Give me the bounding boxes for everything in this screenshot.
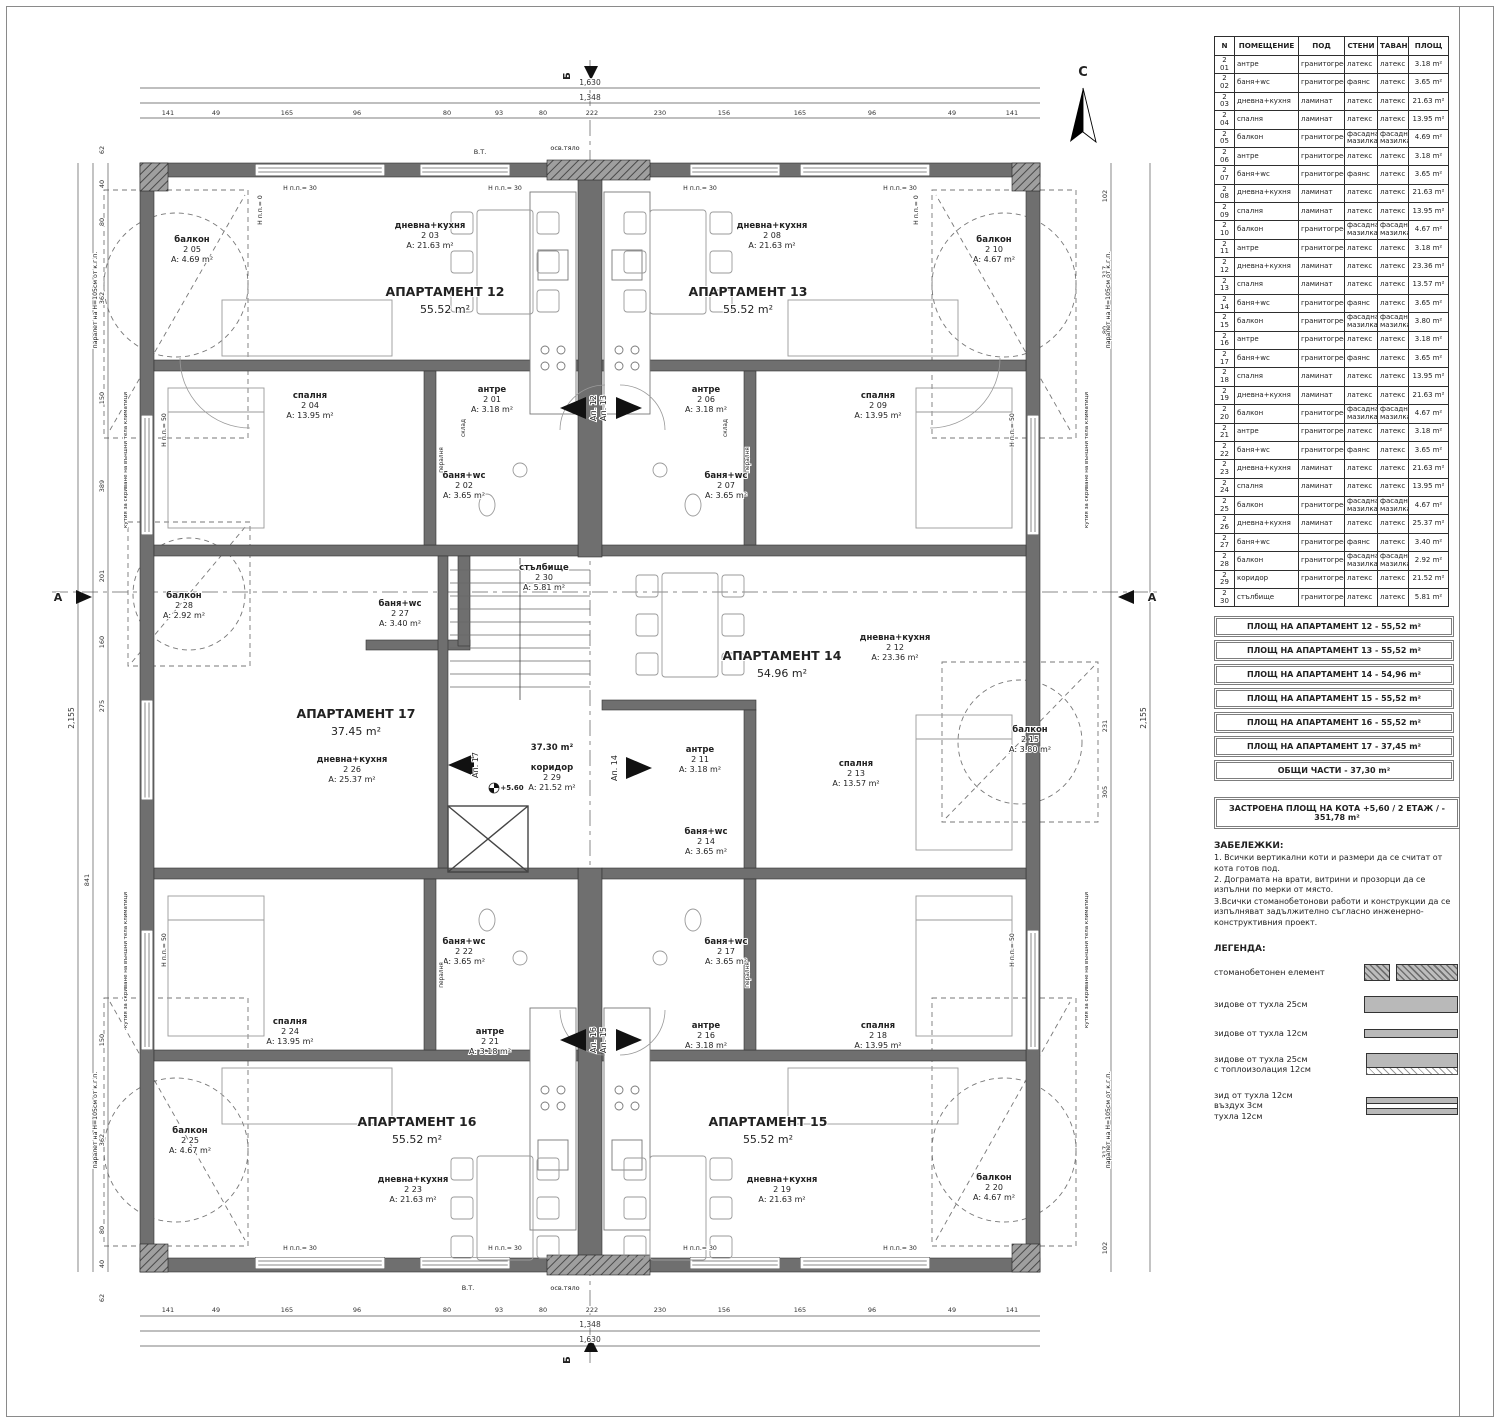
schedule-row: 2 04спалняламинатлатекслатекс13.95 m² [1215,111,1449,129]
schedule-col-header: N [1215,37,1235,56]
plan-label: 141 [1006,109,1018,117]
schedule-row: 2 28балконгранитогресфасадна мазилкафаса… [1215,552,1449,570]
schedule-cell: 5.81 m² [1409,588,1449,606]
schedule-cell: антре [1235,331,1299,349]
schedule-cell: латекс [1345,570,1378,588]
schedule-cell: 2 13 [1215,276,1235,294]
plan-label: склад [723,419,729,437]
schedule-cell: ламинат [1299,478,1345,496]
schedule-cell: 4.67 m² [1409,405,1449,423]
plan-label: 1,630 [579,78,601,87]
room-label: спалня2 04А: 13.95 m² [286,391,333,420]
schedule-cell: фаянс [1345,533,1378,551]
schedule-cell: латекс [1378,441,1409,459]
plan-label: 62 [98,1294,106,1302]
info-panel: NПОМЕЩЕНИЕПОДСТЕНИТАВАНПЛОЩ 2 01антрегра… [1214,36,1460,1136]
schedule-cell: латекс [1378,386,1409,404]
schedule-cell: фаянс [1345,74,1378,92]
schedule-cell: латекс [1378,350,1409,368]
schedule-cell: латекс [1378,239,1409,257]
schedule-cell: дневна+кухня [1235,460,1299,478]
schedule-cell: гранитогрес [1299,570,1345,588]
schedule-cell: 2 04 [1215,111,1235,129]
schedule-cell: гранитогрес [1299,497,1345,515]
plan-label: 841 [83,874,91,886]
schedule-cell: ламинат [1299,276,1345,294]
schedule-row: 2 27баня+wcгранитогресфаянслатекс3.40 m² [1215,533,1449,551]
schedule-cell: 2.92 m² [1409,552,1449,570]
drawing-sheet: { "colors":{"wall":"#6f6f6f","line":"#33… [0,0,1500,1423]
schedule-cell: 2 25 [1215,497,1235,515]
plan-label: 362 [98,1134,106,1146]
plan-label: кутия за скриване на външни тела климати… [1084,392,1090,528]
schedule-cell: фасадна мазилка [1378,221,1409,239]
staircase [450,558,590,700]
entrance-label: Ап. 13 [599,395,608,421]
schedule-cell: латекс [1378,74,1409,92]
schedule-cell: 3.65 m² [1409,74,1449,92]
plan-label: 40 [98,1260,106,1268]
schedule-col-header: СТЕНИ [1345,37,1378,56]
schedule-cell: 13.57 m² [1409,276,1449,294]
room-label: дневна+кухня2 23А: 21.63 m² [378,1175,449,1204]
schedule-row: 2 26дневна+кухняламинатлатекслатекс25.37… [1215,515,1449,533]
room-label: антре2 16А: 3.18 m² [685,1021,727,1050]
plan-label: 222 [586,1306,598,1314]
schedule-cell: 23.36 m² [1409,258,1449,276]
schedule-cell: баня+wc [1235,441,1299,459]
entrance-label: Ап. 14 [610,755,619,781]
schedule-cell: 2 08 [1215,184,1235,202]
area-summary-box: ПЛОЩ НА АПАРТАМЕНТ 12 - 55,52 m² [1214,616,1454,637]
room-label: балкон2 05А: 4.69 m² [171,234,213,264]
note-item: 2. Дограмата на врати, витрини и прозорц… [1214,875,1458,896]
plan-label: 2,155 [1139,707,1148,729]
dining-furniture [662,573,718,677]
schedule-cell: латекс [1345,92,1378,110]
schedule-cell: гранитогрес [1299,588,1345,606]
schedule-cell: фасадна мазилка [1345,552,1378,570]
schedule-cell: баня+wc [1235,350,1299,368]
schedule-cell: гранитогрес [1299,405,1345,423]
plan-label: осв.тяло [550,1284,579,1292]
schedule-cell: балкон [1235,405,1299,423]
schedule-cell: латекс [1378,588,1409,606]
plan-label: 141 [162,1306,174,1314]
schedule-cell: фасадна мазилка [1345,313,1378,331]
schedule-row: 2 16антрегранитогреслатекслатекс3.18 m² [1215,331,1449,349]
schedule-row: 2 13спалняламинатлатекслатекс13.57 m² [1215,276,1449,294]
schedule-cell: 2 15 [1215,313,1235,331]
schedule-cell: спалня [1235,276,1299,294]
schedule-cell: латекс [1345,331,1378,349]
schedule-cell: 21.63 m² [1409,386,1449,404]
room-label: антре2 06А: 3.18 m² [685,385,727,414]
schedule-cell: спалня [1235,203,1299,221]
schedule-cell: 2 10 [1215,221,1235,239]
built-area-box: ЗАСТРОЕНА ПЛОЩ НА КОТА +5,60 / 2 ЕТАЖ / … [1214,797,1460,829]
plan-label: Н п.п.= 50 [161,413,168,447]
floor-plan: антре2 01А: 3.18 m²баня+wc2 02А: 3.65 m²… [0,0,1210,1423]
apartment-area-summary: ПЛОЩ НА АПАРТАМЕНТ 12 - 55,52 m²ПЛОЩ НА … [1214,616,1454,781]
plan-label: Н п.п.= 30 [488,185,522,192]
schedule-cell: латекс [1345,203,1378,221]
plan-label: Б [562,72,573,80]
schedule-cell: латекс [1345,56,1378,74]
schedule-cell: 13.95 m² [1409,478,1449,496]
legend-swatch-brick25 [1362,996,1458,1013]
schedule-cell: антре [1235,56,1299,74]
schedule-cell: 21.63 m² [1409,92,1449,110]
schedule-cell: гранитогрес [1299,74,1345,92]
dining-furniture [451,251,473,273]
room-label: баня+wc2 17А: 3.65 m² [704,936,747,966]
plan-label: осв.тяло [550,144,579,152]
plan-label: 49 [948,109,956,117]
schedule-row: 2 12дневна+кухняламинатлатекслатекс23.36… [1215,258,1449,276]
schedule-cell: 13.95 m² [1409,368,1449,386]
schedule-cell: 3.18 m² [1409,239,1449,257]
schedule-cell: латекс [1378,203,1409,221]
schedule-cell: антре [1235,239,1299,257]
schedule-cell: фасадна мазилка [1378,405,1409,423]
room-label: дневна+кухня2 26А: 25.37 m² [317,755,388,784]
dining-furniture [451,1236,473,1258]
schedule-row: 2 11антрегранитогреслатекслатекс3.18 m² [1215,239,1449,257]
schedule-cell: антре [1235,423,1299,441]
room-label: дневна+кухня2 12А: 23.36 m² [860,633,931,662]
schedule-cell: латекс [1345,386,1378,404]
schedule-cell: 21.63 m² [1409,460,1449,478]
plan-label: Н п.п.= 50 [161,933,168,967]
plan-label: 389 [98,480,106,492]
area-summary-box: ПЛОЩ НА АПАРТАМЕНТ 14 - 54,96 m² [1214,664,1454,685]
schedule-cell: латекс [1378,111,1409,129]
dining-furniture [710,251,732,273]
schedule-cell: балкон [1235,129,1299,147]
room-label: антре2 11А: 3.18 m² [679,745,721,774]
plan-label: Н п.п.= 30 [683,185,717,192]
room-label: баня+wc2 22А: 3.65 m² [442,936,485,966]
schedule-cell: фаянс [1345,441,1378,459]
plan-label: 156 [718,109,730,117]
schedule-cell: 2 28 [1215,552,1235,570]
schedule-cell: латекс [1378,147,1409,165]
schedule-row: 2 09спалняламинатлатекслатекс13.95 m² [1215,203,1449,221]
plan-label: 231 [1101,720,1109,732]
schedule-col-header: ПЛОЩ [1409,37,1449,56]
room-label: спалня2 09А: 13.95 m² [854,391,901,420]
dining-furniture [451,1158,473,1180]
legend-title: ЛЕГЕНДА: [1214,944,1458,954]
schedule-cell: 2 18 [1215,368,1235,386]
schedule-cell: балкон [1235,497,1299,515]
plan-label: 96 [353,109,361,117]
schedule-cell: спалня [1235,368,1299,386]
schedule-cell: дневна+кухня [1235,92,1299,110]
schedule-cell: латекс [1378,533,1409,551]
area-summary-box: ПЛОЩ НА АПАРТАМЕНТ 13 - 55,52 m² [1214,640,1454,661]
schedule-cell: фасадна мазилка [1378,497,1409,515]
plan-label: 165 [281,109,293,117]
level-mark [489,783,499,793]
elevator [448,806,528,872]
schedule-cell: гранитогрес [1299,313,1345,331]
schedule-cell: баня+wc [1235,74,1299,92]
schedule-cell: баня+wc [1235,294,1299,312]
schedule-cell: латекс [1378,184,1409,202]
schedule-cell: 3.80 m² [1409,313,1449,331]
plan-label: паралет на Н=105см от к.г.п. [92,252,99,349]
plan-label: паралет на Н=105см от к.г.п. [1105,252,1112,349]
schedule-cell: латекс [1345,147,1378,165]
dining-furniture [710,1158,732,1180]
plan-label: пералня [439,962,445,988]
room-label: балкон2 20А: 4.67 m² [973,1172,1015,1202]
schedule-cell: стълбище [1235,588,1299,606]
schedule-row: 2 10балконгранитогресфасадна мазилкафаса… [1215,221,1449,239]
schedule-cell: 2 27 [1215,533,1235,551]
schedule-row: 2 18спалняламинатлатекслатекс13.95 m² [1215,368,1449,386]
schedule-cell: дневна+кухня [1235,258,1299,276]
room-label: балкон2 10А: 4.67 m² [973,234,1015,264]
schedule-cell: фаянс [1345,294,1378,312]
dining-furniture [636,653,658,675]
schedule-cell: 3.18 m² [1409,147,1449,165]
schedule-cell: ламинат [1299,460,1345,478]
schedule-cell: 2 29 [1215,570,1235,588]
dining-furniture [710,212,732,234]
schedule-cell: 3.40 m² [1409,533,1449,551]
schedule-cell: 3.65 m² [1409,350,1449,368]
schedule-cell: 21.63 m² [1409,184,1449,202]
schedule-cell: латекс [1345,460,1378,478]
schedule-row: 2 25балконгранитогресфасадна мазилкафаса… [1215,497,1449,515]
schedule-header-row: NПОМЕЩЕНИЕПОДСТЕНИТАВАНПЛОЩ [1215,37,1449,56]
schedule-row: 2 15балконгранитогресфасадна мазилкафаса… [1215,313,1449,331]
plan-label: 222 [586,109,598,117]
schedule-cell: 2 03 [1215,92,1235,110]
plan-label: 93 [495,1306,503,1314]
schedule-cell: 2 20 [1215,405,1235,423]
legend-label: зидове от тухла 25см [1214,999,1362,1009]
schedule-cell: 2 23 [1215,460,1235,478]
schedule-cell: латекс [1378,56,1409,74]
schedule-row: 2 05балконгранитогресфасадна мазилкафаса… [1215,129,1449,147]
area-summary-box: ПЛОЩ НА АПАРТАМЕНТ 17 - 37,45 m² [1214,736,1454,757]
schedule-cell: 25.37 m² [1409,515,1449,533]
plan-label: Н п.п.= 30 [883,1245,917,1252]
dining-furniture [722,614,744,636]
schedule-cell: баня+wc [1235,533,1299,551]
schedule-cell: латекс [1345,276,1378,294]
schedule-row: 2 06антрегранитогреслатекслатекс3.18 m² [1215,147,1449,165]
schedule-cell: 2 07 [1215,166,1235,184]
schedule-cell: латекс [1378,276,1409,294]
schedule-cell: латекс [1378,294,1409,312]
room-label: балкон2 25А: 4.67 m² [169,1125,211,1155]
schedule-cell: гранитогрес [1299,221,1345,239]
schedule-cell: гранитогрес [1299,147,1345,165]
dining-furniture [636,575,658,597]
schedule-cell: гранитогрес [1299,441,1345,459]
plan-label: пералня [745,962,751,988]
schedule-row: 2 20балконгранитогресфасадна мазилкафаса… [1215,405,1449,423]
schedule-cell: латекс [1345,478,1378,496]
schedule-cell: гранитогрес [1299,552,1345,570]
entrance-label: Ап. 16 [589,1027,598,1053]
legend-swatch-brick12 [1362,1029,1458,1038]
plan-label: 49 [212,109,220,117]
schedule-cell: латекс [1345,515,1378,533]
room-label: дневна+кухня2 19А: 21.63 m² [747,1175,818,1204]
schedule-cell: латекс [1378,331,1409,349]
plan-label: 165 [794,1306,806,1314]
plan-label: 160 [98,636,106,648]
schedule-cell: 2 21 [1215,423,1235,441]
schedule-cell: гранитогрес [1299,533,1345,551]
plan-label: 165 [281,1306,293,1314]
schedule-cell: латекс [1345,258,1378,276]
schedule-cell: дневна+кухня [1235,184,1299,202]
plan-label: 305 [1101,786,1109,798]
schedule-cell: 3.65 m² [1409,441,1449,459]
plan-label: 96 [868,109,876,117]
plan-label: 37.30 m² [531,743,574,753]
dining-furniture [537,1236,559,1258]
plan-label: 93 [495,109,503,117]
schedule-cell: 2 12 [1215,258,1235,276]
schedule-cell: гранитогрес [1299,294,1345,312]
schedule-cell: балкон [1235,552,1299,570]
schedule-cell: 4.67 m² [1409,497,1449,515]
schedule-cell: латекс [1378,570,1409,588]
schedule-cell: 2 09 [1215,203,1235,221]
plan-label: 80 [443,109,451,117]
schedule-cell: гранитогрес [1299,331,1345,349]
entrance-label: Ап. 17 [471,752,480,778]
schedule-cell: 4.67 m² [1409,221,1449,239]
schedule-cell: гранитогрес [1299,423,1345,441]
schedule-cell: 2 30 [1215,588,1235,606]
schedule-cell: 13.95 m² [1409,203,1449,221]
schedule-cell: балкон [1235,313,1299,331]
plan-label: 49 [212,1306,220,1314]
plan-label: пералня [745,447,751,473]
legend-item: зид от тухла 12см въздух 3см тухла 12см [1214,1090,1458,1121]
schedule-cell: 13.95 m² [1409,111,1449,129]
legend-swatch-brick25iso [1362,1053,1458,1075]
schedule-cell: латекс [1378,92,1409,110]
schedule-cell: 3.65 m² [1409,294,1449,312]
entrance-label: Ап. 15 [599,1027,608,1053]
plan-label: Н п.п.= 30 [883,185,917,192]
schedule-cell: ламинат [1299,368,1345,386]
entrance-arrow-icon [626,757,652,779]
schedule-cell: балкон [1235,221,1299,239]
schedule-cell: гранитогрес [1299,129,1345,147]
legend-label: зид от тухла 12см въздух 3см тухла 12см [1214,1090,1362,1121]
legend-item: зидове от тухла 25см [1214,996,1458,1013]
schedule-cell: 3.18 m² [1409,423,1449,441]
plan-label: 275 [98,700,106,712]
plan-label: С [1078,65,1088,80]
schedule-cell: фасадна мазилка [1345,497,1378,515]
room-label: стълбище2 30А: 5.81 m² [519,562,569,592]
plan-label: Н п.п.= 50 [1009,933,1016,967]
schedule-cell: латекс [1378,478,1409,496]
notes-title: ЗАБЕЛЕЖКИ: [1214,841,1458,851]
plan-label: 80 [98,218,106,226]
plan-label: 165 [794,109,806,117]
schedule-cell: 4.69 m² [1409,129,1449,147]
plan-label: 62 [98,146,106,154]
plan-label: А [1148,591,1157,604]
schedule-cell: фасадна мазилка [1345,221,1378,239]
legend-label: зидове от тухла 25см с топлоизолация 12с… [1214,1054,1362,1075]
schedule-row: 2 21антрегранитогреслатекслатекс3.18 m² [1215,423,1449,441]
plan-label: Б [562,1356,573,1364]
room-label: спалня2 24А: 13.95 m² [266,1017,313,1046]
schedule-cell: 2 24 [1215,478,1235,496]
plan-label: Н п.п.= 30 [488,1245,522,1252]
room-label: дневна+кухня2 03А: 21.63 m² [395,221,466,250]
dining-furniture [636,614,658,636]
room-label: антре2 21А: 3.18 m² [469,1027,511,1056]
schedule-cell: дневна+кухня [1235,515,1299,533]
plan-label: 1,630 [579,1335,601,1344]
schedule-cell: 2 01 [1215,56,1235,74]
schedule-cell: 2 16 [1215,331,1235,349]
plan-label: Н п.п.= 0 [257,195,264,225]
plan-label: 40 [98,180,106,188]
schedule-cell: гранитогрес [1299,166,1345,184]
room-label: баня+wc2 14А: 3.65 m² [684,826,727,856]
dining-furniture [710,1197,732,1219]
plan-label: кутия за скриване на външни тела климати… [123,392,129,528]
schedule-cell: латекс [1345,239,1378,257]
schedule-cell: 2 11 [1215,239,1235,257]
schedule-row: 2 17баня+wcгранитогресфаянслатекс3.65 m² [1215,350,1449,368]
apartment-label: АПАРТАМЕНТ 1655.52 m² [358,1114,477,1146]
room-label: коридор2 29А: 21.52 m² [528,763,575,792]
schedule-cell: спалня [1235,478,1299,496]
schedule-cell: фасадна мазилка [1378,313,1409,331]
schedule-cell: баня+wc [1235,166,1299,184]
plan-label: 49 [948,1306,956,1314]
schedule-cell: ламинат [1299,258,1345,276]
schedule-cell: 21.52 m² [1409,570,1449,588]
room-label: баня+wc2 02А: 3.65 m² [442,470,485,500]
legend-label: стоманобетонен елемент [1214,967,1362,977]
note-item: 3.Всички стоманобетонови работи и констр… [1214,897,1458,928]
schedule-cell: 2 19 [1215,386,1235,404]
plan-label: 1,348 [579,93,601,102]
walls [140,163,1040,1272]
schedule-row: 2 29коридоргранитогреслатекслатекс21.52 … [1215,570,1449,588]
plan-label: 80 [443,1306,451,1314]
plan-label: 96 [353,1306,361,1314]
notes-section: ЗАБЕЛЕЖКИ: 1. Всички вертикални коти и р… [1214,841,1458,928]
schedule-row: 2 02баня+wcгранитогресфаянслатекс3.65 m² [1215,74,1449,92]
legend-label: зидове от тухла 12см [1214,1028,1362,1038]
plan-label: 1,348 [579,1320,601,1329]
plan-label: Н п.п.= 30 [283,1245,317,1252]
note-item: 1. Всички вертикални коти и размери да с… [1214,853,1458,874]
schedule-cell: 2 26 [1215,515,1235,533]
plan-label: +5.60 [500,784,523,792]
schedule-row: 2 14баня+wcгранитогресфаянслатекс3.65 m² [1215,294,1449,312]
